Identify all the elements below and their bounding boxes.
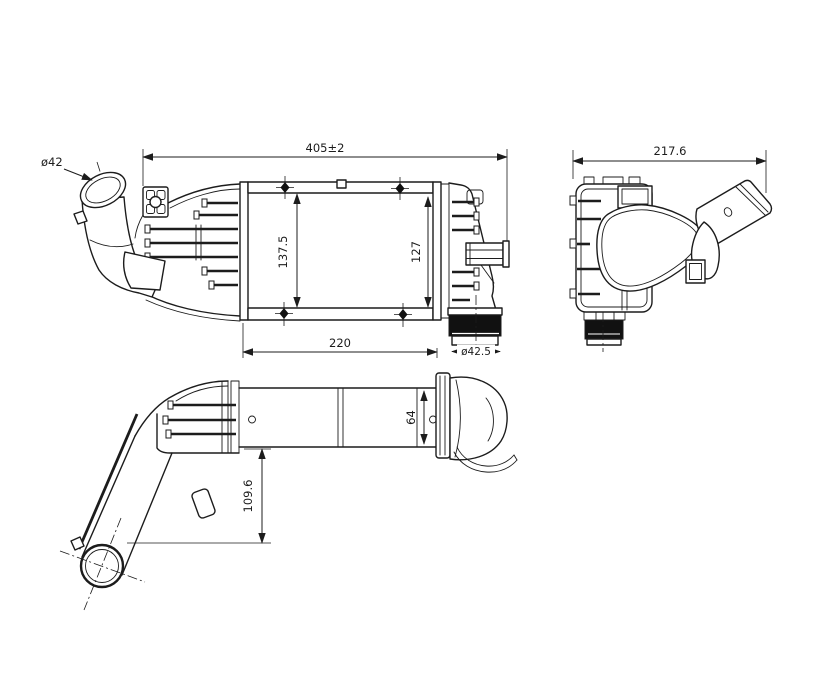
dim-label-overall-width: 405±2 [306, 141, 345, 155]
dimension-height-right: 127 [409, 197, 428, 307]
side-port [466, 241, 509, 283]
dim-label-core-width: 220 [329, 336, 351, 350]
pipe-edge-seam [79, 414, 137, 549]
dim-label-end-tank-width: 64 [404, 410, 418, 425]
bottom-end-cap [436, 373, 517, 472]
side-view: 217.6 [570, 144, 772, 352]
dim-label-pipe-center-offset: 109.6 [241, 480, 255, 513]
pipe-tab [191, 488, 216, 519]
technical-drawing-canvas: 405±2 ø42 137.5 127 220 ø42.5 [0, 0, 820, 680]
front-view: 405±2 ø42 137.5 127 220 ø42.5 [41, 141, 509, 358]
dim-label-outlet-diameter: ø42.5 [461, 346, 491, 358]
dimension-core-width: 220 [243, 323, 437, 358]
dimension-inlet-diameter: ø42 [41, 155, 92, 180]
right-tank [449, 183, 509, 310]
dimension-outlet-diameter: ø42.5 [452, 345, 500, 359]
bottom-pipe [60, 414, 216, 610]
mount-pin [391, 177, 409, 200]
core-top-notch [337, 180, 346, 188]
leader-line [64, 169, 92, 180]
dim-label-height-right: 127 [409, 241, 423, 263]
end-dome [450, 377, 507, 460]
side-bracket [686, 260, 705, 283]
dim-label-inlet-diameter: ø42 [41, 155, 63, 169]
side-outlet-stub [584, 312, 625, 352]
dim-label-height-left: 137.5 [276, 236, 290, 269]
dimension-end-tank-width: 64 [404, 391, 424, 444]
mount-pin [276, 176, 294, 199]
bottom-left-taper [135, 381, 239, 453]
dim-label-overall-depth: 217.6 [654, 144, 687, 158]
drawing-page: 405±2 ø42 137.5 127 220 ø42.5 [0, 0, 820, 680]
bottom-view: 64 109.6 [60, 373, 517, 610]
mounting-bracket [143, 187, 168, 217]
dimension-height-left: 137.5 [276, 194, 297, 307]
